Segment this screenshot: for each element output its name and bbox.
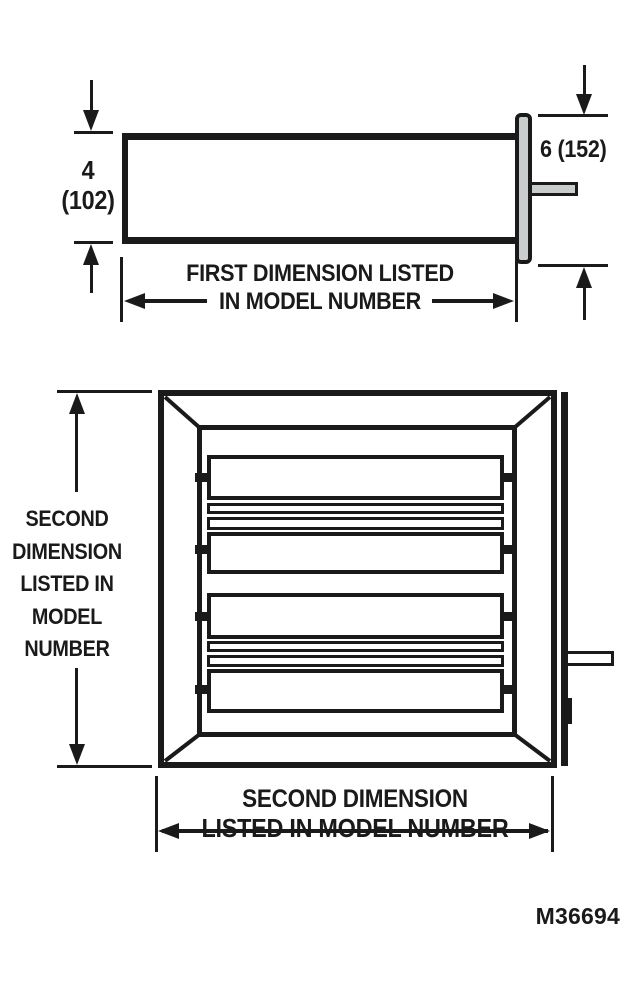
dim-arrow-line-top	[75, 413, 78, 492]
louver-blade-edge	[207, 503, 504, 514]
blade-pivot-stub	[502, 685, 515, 694]
blade-pivot-stub	[195, 473, 208, 482]
extension-line-left	[155, 776, 158, 852]
damper-shaft-front	[568, 651, 614, 666]
figure-code: M36694	[490, 903, 620, 930]
louver-blade-edge	[207, 655, 504, 667]
dim-arrow-line-bottom	[75, 668, 78, 745]
bevel-line-bottom-left	[165, 734, 200, 761]
damper-shaft-side	[528, 182, 578, 196]
dim-label-line: LISTED IN	[7, 568, 128, 601]
bevel-line-top-left	[165, 397, 200, 428]
dim-tick-bottom	[57, 765, 152, 768]
blade-pivot-stub	[502, 612, 515, 621]
blade-pivot-stub	[502, 545, 515, 554]
blade-pivot-stub	[502, 473, 515, 482]
louver-blade	[207, 455, 504, 500]
blade-pivot-stub	[195, 545, 208, 554]
dim-label-line: SECOND	[7, 503, 128, 536]
dim-label-height-stack: SECOND DIMENSION LISTED IN MODEL NUMBER	[7, 503, 128, 666]
mounting-flange	[515, 113, 532, 264]
technical-drawing-canvas: 4 (102) 6 (152) FIRST DIMENSION LISTED I…	[0, 0, 624, 1000]
louver-blade-edge	[207, 517, 504, 530]
louver-blade	[207, 669, 504, 713]
bevel-line-top-right	[514, 397, 550, 428]
blade-pivot-stub	[195, 685, 208, 694]
louver-blade-edge	[207, 641, 504, 652]
blade-pivot-stub	[195, 612, 208, 621]
louver-blade	[207, 532, 504, 574]
dim-label-line: DIMENSION	[7, 536, 128, 569]
dim-label-line: MODEL	[7, 601, 128, 634]
louver-blade	[207, 593, 504, 639]
dim-label-width-line1: SECOND DIMENSION	[175, 785, 535, 814]
latch-tab	[561, 698, 572, 724]
arrowhead-down	[69, 744, 85, 765]
extension-line-right	[551, 776, 554, 852]
dim-label-width-line2: LISTED IN MODEL NUMBER	[175, 813, 535, 844]
arrowhead-up	[69, 393, 85, 414]
dim-label-line: NUMBER	[7, 633, 128, 666]
bevel-line-bottom-right	[514, 734, 550, 761]
